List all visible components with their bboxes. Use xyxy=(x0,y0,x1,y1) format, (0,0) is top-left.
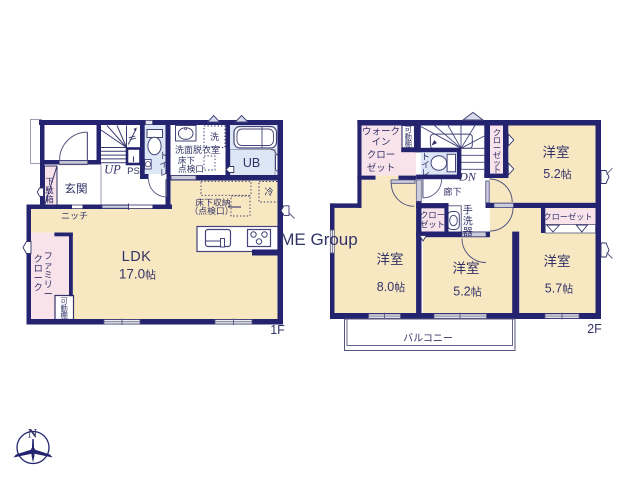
svg-text:バルコニー: バルコニー xyxy=(403,333,453,345)
svg-text:可動棚: 可動棚 xyxy=(61,297,68,321)
svg-text:トイレ: トイレ xyxy=(421,152,430,178)
svg-text:洋室: 洋室 xyxy=(543,144,570,160)
svg-text:ME Group: ME Group xyxy=(280,230,357,249)
svg-text:冷: 冷 xyxy=(264,186,273,197)
svg-text:クローク: クローク xyxy=(34,254,43,293)
svg-text:UP: UP xyxy=(104,163,121,177)
svg-text:1F: 1F xyxy=(270,323,285,337)
svg-text:クロー: クロー xyxy=(367,150,396,161)
svg-text:ニッチ: ニッチ xyxy=(61,211,88,221)
svg-text:ウォーク: ウォーク xyxy=(362,127,400,138)
svg-text:UB: UB xyxy=(243,156,260,170)
svg-text:5.2帖: 5.2帖 xyxy=(543,167,571,181)
svg-text:洋室: 洋室 xyxy=(453,260,480,276)
svg-text:トイレ: トイレ xyxy=(159,151,168,178)
svg-text:可動棚: 可動棚 xyxy=(405,125,412,149)
svg-text:クローゼット: クローゼット xyxy=(543,212,592,222)
svg-text:2F: 2F xyxy=(587,322,602,336)
svg-text:手洗器: 手洗器 xyxy=(463,204,473,239)
svg-text:クローゼット: クローゼット xyxy=(493,129,501,175)
svg-text:PS: PS xyxy=(127,166,140,177)
svg-text:17.0帖: 17.0帖 xyxy=(119,267,156,282)
svg-text:LDK: LDK xyxy=(122,249,152,265)
svg-text:廊下: 廊下 xyxy=(443,186,461,197)
svg-text:ゼット: ゼット xyxy=(420,220,445,230)
svg-text:（点検口）: （点検口） xyxy=(190,205,234,216)
svg-text:5.7帖: 5.7帖 xyxy=(545,282,573,296)
svg-text:洗: 洗 xyxy=(210,131,219,142)
svg-text:ファミリー: ファミリー xyxy=(44,251,53,299)
svg-text:洋室: 洋室 xyxy=(377,251,404,267)
svg-text:DN: DN xyxy=(458,170,477,184)
svg-text:8.0帖: 8.0帖 xyxy=(377,280,405,294)
svg-text:クロー: クロー xyxy=(420,210,445,220)
svg-text:玄関: 玄関 xyxy=(65,182,88,196)
svg-text:洗面脱衣室: 洗面脱衣室 xyxy=(175,144,220,155)
svg-text:ゼット: ゼット xyxy=(367,162,396,174)
svg-text:イン: イン xyxy=(371,137,390,148)
svg-text:洋室: 洋室 xyxy=(544,253,571,269)
svg-text:N: N xyxy=(28,427,37,441)
svg-text:5.2帖: 5.2帖 xyxy=(453,285,481,299)
svg-text:下駄箱: 下駄箱 xyxy=(45,177,54,205)
svg-text:点検口: 点検口 xyxy=(178,163,204,174)
